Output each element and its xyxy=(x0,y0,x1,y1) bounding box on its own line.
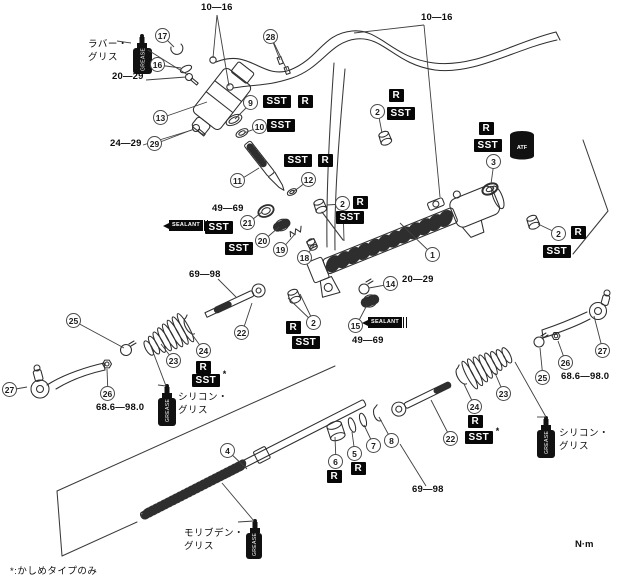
sealant-label: SEALANT xyxy=(368,317,402,328)
torque-label: 68.6—98.0 xyxy=(96,403,144,413)
sst-tag: SST xyxy=(292,336,320,349)
callout-6: 6 xyxy=(328,454,343,469)
crimp-type-asterisk: * xyxy=(496,427,500,436)
silicone-grease-left-note: シリコン・ グリス xyxy=(178,392,228,417)
sealant-cap-icon xyxy=(204,220,208,231)
callout-13: 13 xyxy=(153,110,168,125)
callout-26: 26 xyxy=(100,386,115,401)
callout-25: 25 xyxy=(66,313,81,328)
callout-28: 28 xyxy=(263,29,278,44)
sst-tag: SST* xyxy=(465,431,493,444)
r-tag: R xyxy=(286,321,301,334)
molybdenum-grease-note: モリブデン・ グリス xyxy=(184,528,244,553)
sst-tag: SST* xyxy=(192,374,220,387)
r-tag: R xyxy=(327,470,342,483)
callout-27: 27 xyxy=(595,343,610,358)
callout-27: 27 xyxy=(2,382,17,397)
callout-7: 7 xyxy=(366,438,381,453)
callout-16: 16 xyxy=(150,57,165,72)
callout-14: 14 xyxy=(383,276,398,291)
callout-10: 10 xyxy=(252,119,267,134)
exploded-parts-diagram: ATF GREASE GREASE GREASE GREASE xyxy=(0,0,620,582)
callout-23: 23 xyxy=(496,386,511,401)
sst-tag: SST xyxy=(225,242,253,255)
callout-9: 9 xyxy=(243,95,258,110)
torque-label: 24—29 xyxy=(110,139,142,149)
callout-2: 2 xyxy=(551,226,566,241)
torque-label: 49—69 xyxy=(212,204,244,214)
callout-2: 2 xyxy=(306,315,321,330)
callout-21: 21 xyxy=(240,215,255,230)
sst-tag: SST xyxy=(336,211,364,224)
callout-11: 11 xyxy=(230,173,245,188)
callout-8: 8 xyxy=(384,433,399,448)
callout-22: 22 xyxy=(234,325,249,340)
callout-24: 24 xyxy=(196,343,211,358)
callout-19: 19 xyxy=(273,242,288,257)
sst-tag: SST xyxy=(267,119,295,132)
r-tag: R xyxy=(353,196,368,209)
callout-2: 2 xyxy=(370,104,385,119)
callout-3: 3 xyxy=(486,154,501,169)
callout-12: 12 xyxy=(301,172,316,187)
callout-20: 20 xyxy=(255,233,270,248)
r-tag: R xyxy=(318,154,333,167)
sst-tag: SST xyxy=(284,154,312,167)
torque-label: 49—69 xyxy=(352,336,384,346)
sealant-tag-left: SEALANT xyxy=(163,220,208,231)
torque-label: 20—29 xyxy=(402,275,434,285)
sst-tag: SST xyxy=(205,221,233,234)
callout-23: 23 xyxy=(166,353,181,368)
callout-15: 15 xyxy=(348,318,363,333)
silicone-grease-right-note: シリコン・ グリス xyxy=(559,428,609,453)
torque-label: 69—98 xyxy=(412,485,444,495)
r-tag: R xyxy=(351,462,366,475)
callout-22: 22 xyxy=(443,431,458,446)
sealant-label: SEALANT xyxy=(169,220,203,231)
sst-tag: SST xyxy=(474,139,502,152)
rubber-grease-note: ラバー・ グリス xyxy=(88,39,128,64)
callout-4: 4 xyxy=(220,443,235,458)
callout-18: 18 xyxy=(297,250,312,265)
sst-tag: SST xyxy=(387,107,415,120)
torque-label: 68.6—98.0 xyxy=(561,372,609,382)
torque-label: 10—16 xyxy=(201,3,233,13)
crimp-type-footnote: *:かしめタイプのみ xyxy=(10,563,97,577)
sst-tag: SST xyxy=(263,95,291,108)
callout-29: 29 xyxy=(147,136,162,151)
sst-tag: SST xyxy=(543,245,571,258)
callout-17: 17 xyxy=(155,28,170,43)
r-tag: R xyxy=(571,226,586,239)
callout-2: 2 xyxy=(335,196,350,211)
torque-label: 20—29 xyxy=(112,72,144,82)
torque-label: 69—98 xyxy=(189,270,221,280)
r-tag: R xyxy=(468,415,483,428)
callout-26: 26 xyxy=(558,355,573,370)
r-tag: R xyxy=(479,122,494,135)
r-tag: R xyxy=(389,89,404,102)
r-tag: R xyxy=(298,95,313,108)
callout-24: 24 xyxy=(467,399,482,414)
callout-1: 1 xyxy=(425,247,440,262)
torque-label: 10—16 xyxy=(421,13,453,23)
sealant-cap-icon xyxy=(403,317,407,328)
r-tag: R xyxy=(196,361,211,374)
annotation-layer: 1222234567891011121314151617181920212222… xyxy=(0,0,620,582)
callout-5: 5 xyxy=(347,446,362,461)
crimp-type-asterisk: * xyxy=(223,370,227,379)
callout-25: 25 xyxy=(535,370,550,385)
torque-unit-note: N·m xyxy=(575,539,593,550)
sealant-tag-right: SEALANT xyxy=(362,317,407,328)
